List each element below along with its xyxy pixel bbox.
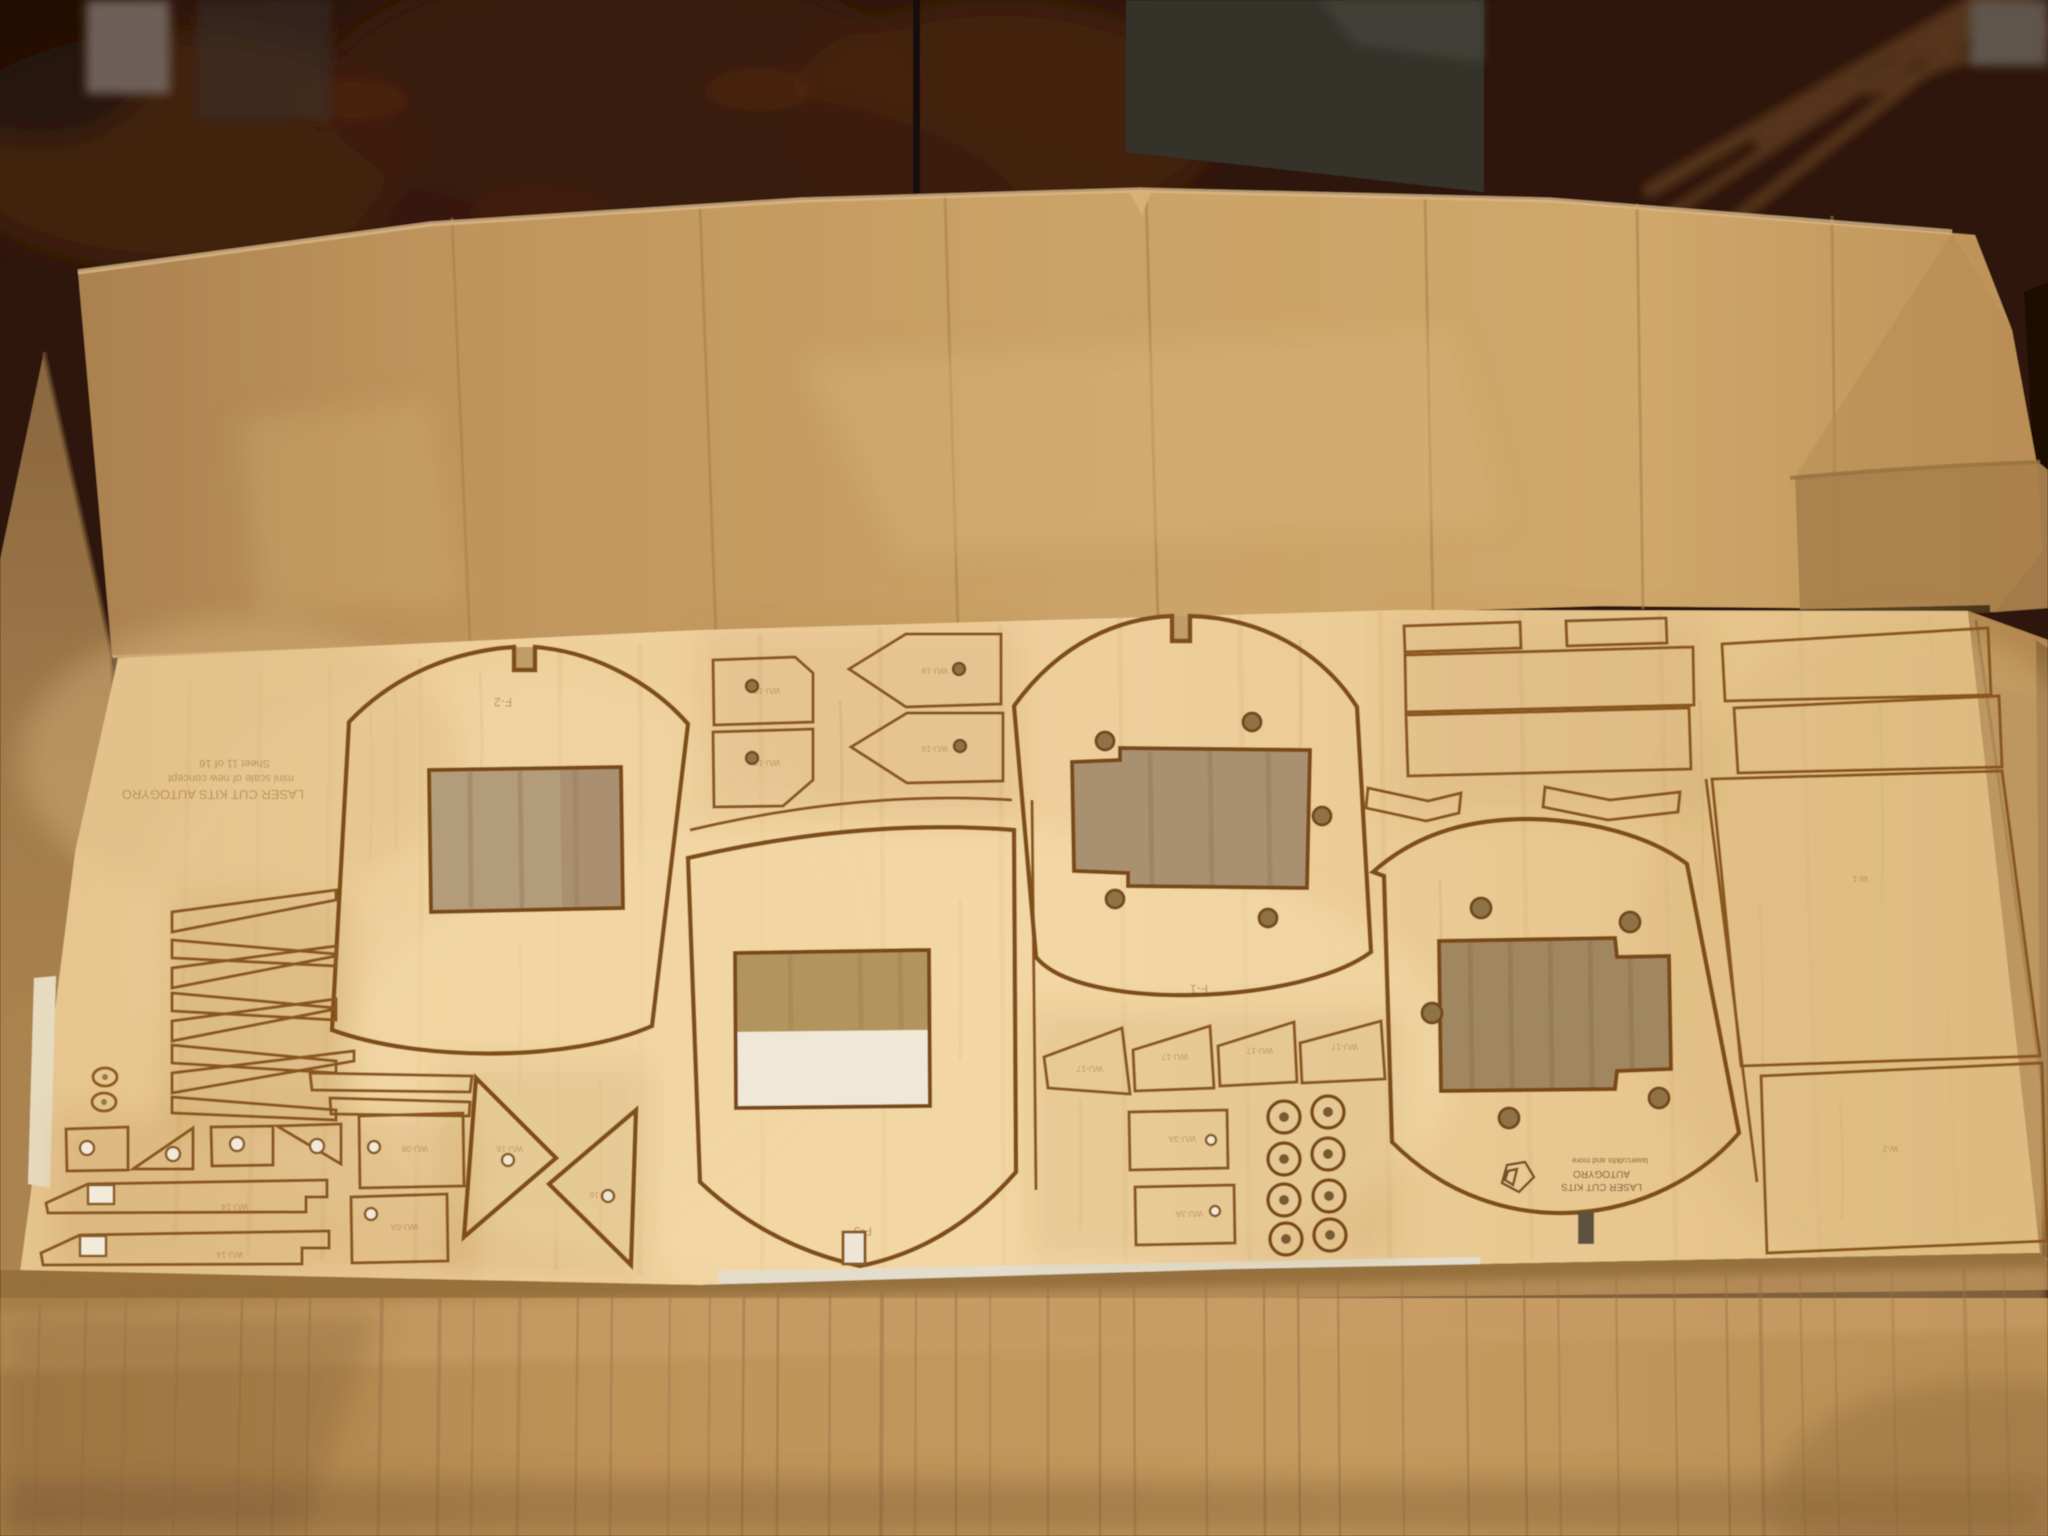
svg-text:lasercutkits and more: lasercutkits and more bbox=[1571, 1156, 1648, 1165]
svg-text:LASER CUT KITS AUTOGYRO: LASER CUT KITS AUTOGYRO bbox=[122, 787, 304, 802]
svg-text:W-1: W-1 bbox=[1852, 874, 1868, 884]
svg-text:AUTOGYRO: AUTOGYRO bbox=[1573, 1168, 1630, 1179]
svg-text:Sheet 11 of 16: Sheet 11 of 16 bbox=[199, 757, 270, 769]
svg-text:W-2: W-2 bbox=[1882, 1144, 1898, 1154]
svg-text:F-2: F-2 bbox=[494, 695, 512, 709]
svg-text:mini scale of new concept: mini scale of new concept bbox=[168, 772, 294, 784]
svg-text:F-1: F-1 bbox=[1190, 982, 1208, 996]
svg-text:LASER CUT KITS: LASER CUT KITS bbox=[1561, 1181, 1642, 1192]
